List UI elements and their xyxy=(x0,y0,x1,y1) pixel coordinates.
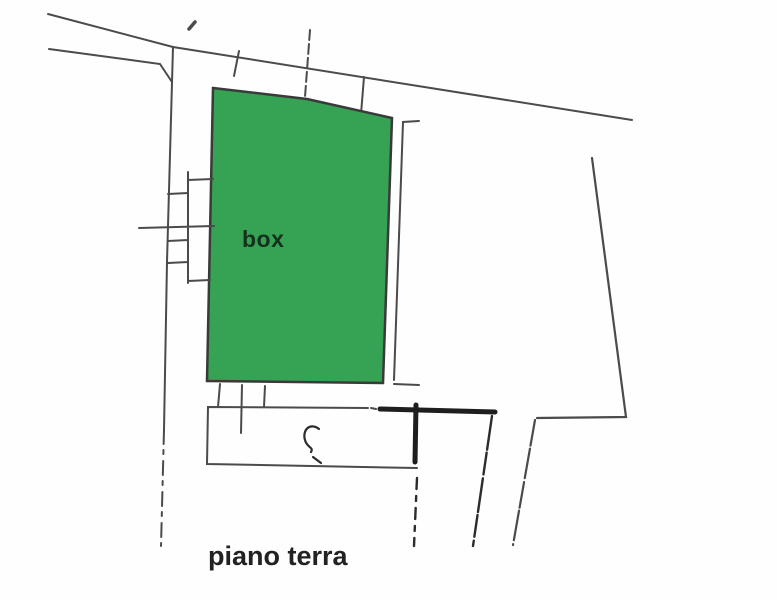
street-boundary-lower-line xyxy=(49,49,172,82)
box-lower-connectors xyxy=(218,384,265,433)
dashed-vertical-line xyxy=(414,478,417,546)
wall-tick-3 xyxy=(361,77,364,114)
door-jamb-dark-vertical xyxy=(415,405,416,462)
left-wall-line xyxy=(164,47,173,430)
handwritten-mark xyxy=(304,426,321,463)
plan-linework xyxy=(48,14,632,546)
floor-level-label: piano terra xyxy=(208,543,348,570)
floor-plan-drawing xyxy=(0,0,777,600)
box-room-label: box xyxy=(242,228,284,251)
street-boundary-upper-line xyxy=(48,14,632,120)
floor-plan-canvas: box piano terra xyxy=(0,0,777,600)
north-mark-icon xyxy=(189,22,195,29)
wall-tick-2-dashed xyxy=(305,30,310,97)
vestibule-walls xyxy=(139,172,214,283)
lower-room-top-dash xyxy=(371,408,376,409)
inner-slant-line xyxy=(473,416,492,546)
right-boundary-line xyxy=(537,158,626,418)
right-wall-bracket xyxy=(394,121,419,385)
lower-room-outline xyxy=(207,407,417,468)
box-room-highlight xyxy=(207,88,392,383)
wall-tick-1 xyxy=(234,51,239,76)
left-wall-line-dashed xyxy=(161,430,164,546)
lower-room-top-dark xyxy=(380,409,495,412)
right-boundary-slant xyxy=(513,420,535,545)
